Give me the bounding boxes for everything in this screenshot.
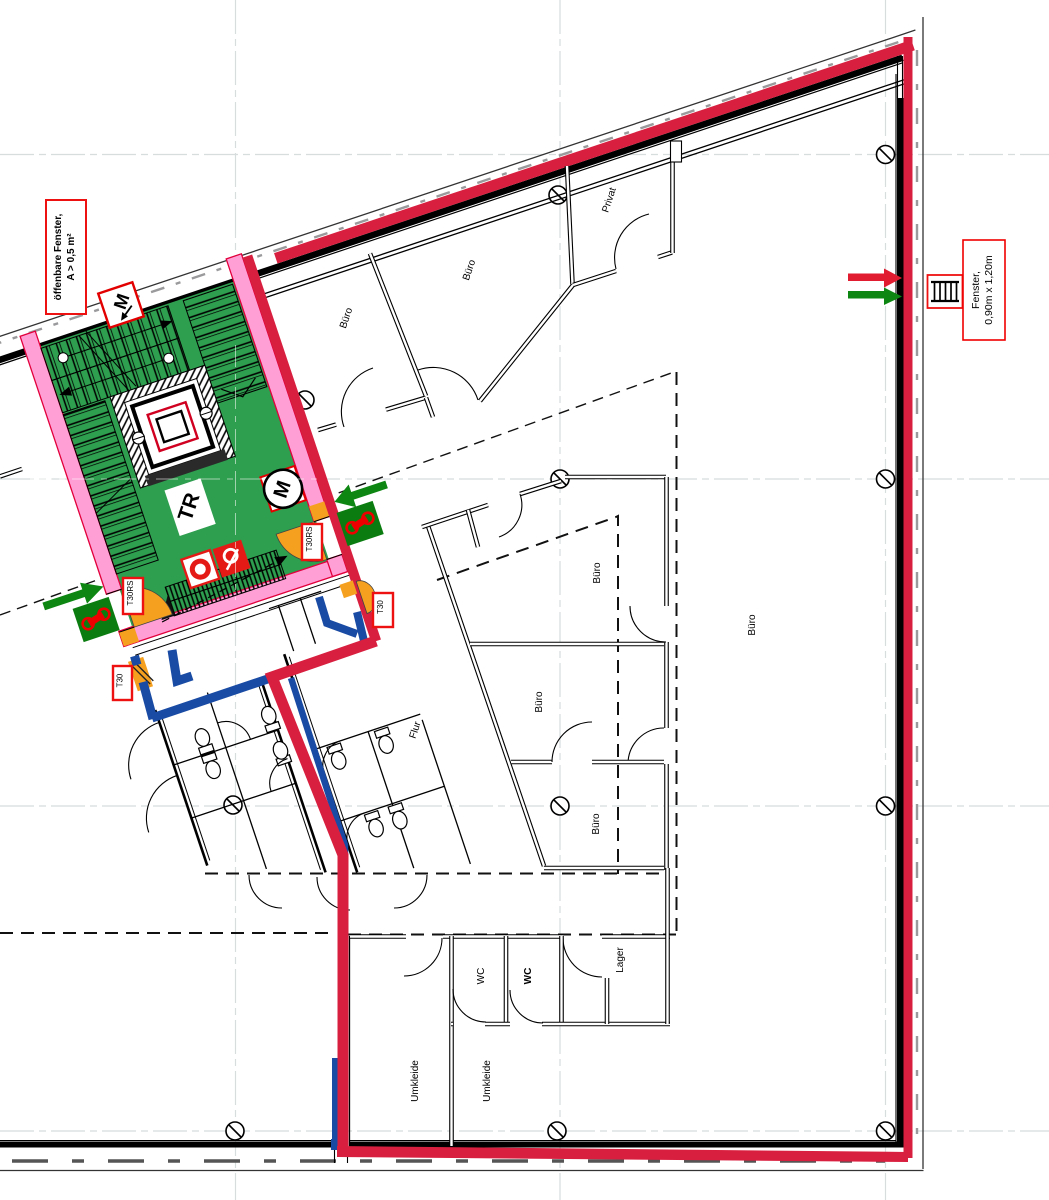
svg-text:WC: WC: [523, 968, 534, 985]
svg-text:Büro: Büro: [747, 614, 758, 636]
svg-text:Lager: Lager: [615, 947, 626, 973]
svg-text:T30: T30: [376, 600, 385, 614]
svg-text:Fenster,: Fenster,: [970, 271, 982, 309]
svg-text:T30: T30: [116, 673, 125, 687]
svg-text:Umkleide: Umkleide: [482, 1060, 493, 1102]
svg-text:A > 0,5 m²: A > 0,5 m²: [66, 233, 77, 281]
svg-text:0,90m x 1,20m: 0,90m x 1,20m: [983, 255, 995, 325]
svg-text:T30RS: T30RS: [126, 581, 135, 606]
svg-text:Büro: Büro: [592, 562, 603, 584]
svg-text:öffenbare Fenster,: öffenbare Fenster,: [53, 213, 64, 300]
svg-text:Umkleide: Umkleide: [410, 1060, 421, 1102]
svg-text:Büro: Büro: [591, 813, 602, 835]
svg-text:T30RS: T30RS: [305, 527, 314, 552]
svg-text:Büro: Büro: [534, 691, 545, 713]
svg-text:WC: WC: [476, 968, 487, 985]
